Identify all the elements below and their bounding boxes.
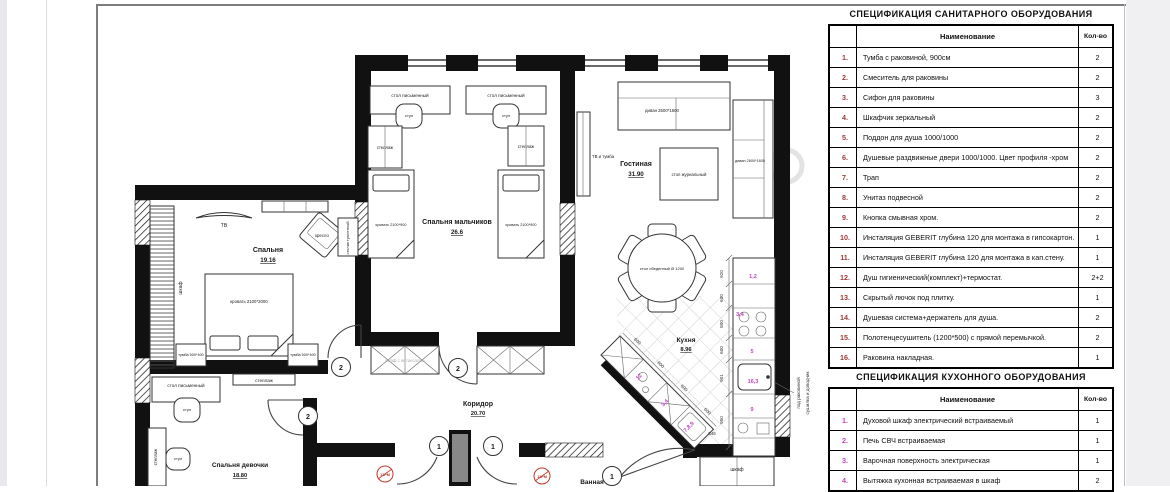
cell-num: 10.: [829, 228, 857, 248]
cell-num: 8.: [829, 188, 857, 208]
cell-name: Инсталяция GEBERIT глубина 120 для монта…: [857, 228, 1079, 248]
cell-qty: 2: [1079, 128, 1114, 148]
table-row: 15.Полотенцесушитель (1200*500) с прямой…: [829, 328, 1113, 348]
room-area-girl: 18.80: [233, 473, 248, 479]
desk-2-label: стол письменный: [487, 92, 525, 98]
dim-901: 901: [719, 374, 724, 382]
table-row: 11.Инсталяция GEBERIT глубина 120 для мо…: [829, 248, 1113, 268]
cell-num: 1.: [829, 411, 857, 431]
sanitary-spec-panel: СПЕЦИФИКАЦИЯ САНИТАРНОГО ОБОРУДОВАНИЯ На…: [828, 9, 1114, 369]
cell-qty: 3: [1079, 88, 1114, 108]
tag-nine: 9: [750, 407, 753, 413]
cell-name: Инсталяция GEBERIT глубина 120 для монта…: [857, 248, 1079, 268]
cell-num: 2.: [829, 431, 857, 451]
cell-num: 4.: [829, 471, 857, 492]
red-tag-right: 12РМ: [534, 468, 550, 484]
table-row: 1.Тумба с раковиной, 900см2: [829, 48, 1113, 68]
cell-name: Душ гигиенический(комплект)+термостат.: [857, 268, 1079, 288]
coffee-table-label: стол журнальный: [672, 172, 707, 177]
header-empty: [829, 25, 857, 48]
door-tag-2b: 2: [449, 359, 468, 378]
nightstand-left-label: тумба 500*400: [178, 353, 204, 357]
room-label-girl: Спальня девочки: [212, 462, 268, 469]
wardrobe-note: шкаф с антресолью: [385, 358, 426, 363]
note-under-sink: под раковиной: [795, 377, 801, 409]
room-label-boys: Спальня мальчиков: [422, 219, 492, 226]
door-tag-1c: 1: [603, 467, 622, 486]
cell-name: Полотенцесушитель (1200*500) с прямой пе…: [857, 328, 1079, 348]
table-header-row: Наименование Кол-во: [829, 388, 1113, 411]
dim-600b: 600: [719, 346, 724, 354]
table-row: 13.Скрытый лючок под плитку.1: [829, 288, 1113, 308]
sofa-top-label: диван 2500*1600: [645, 108, 679, 113]
cell-num: 7.: [829, 168, 857, 188]
cell-name: Сифон для раковины: [857, 88, 1079, 108]
cell-qty: 1: [1079, 451, 1114, 471]
dim-600a: 600: [719, 294, 724, 302]
desk-1-label: стол письменный: [391, 92, 429, 98]
header-qty: Кол-во: [1079, 388, 1114, 411]
room-area-boys: 26.6: [451, 229, 464, 236]
shelf-2-label: стеллаж: [518, 144, 535, 149]
sofa-right-label: диван 2600*1600: [735, 159, 765, 163]
table-row: 3.Варочная поверхность электрическая1: [829, 451, 1113, 471]
cell-name: Духовой шкаф электрический встраиваемый: [857, 411, 1079, 431]
cell-qty: 2: [1079, 68, 1114, 88]
cell-qty: 2: [1079, 168, 1114, 188]
tv-label: ТВ: [221, 223, 228, 229]
table-row: 12.Душ гигиенический(комплект)+термостат…: [829, 268, 1113, 288]
cell-name: Скрытый лючок под плитку.: [857, 288, 1079, 308]
cell-name: Поддон для душа 1000/1000: [857, 128, 1079, 148]
room-label-kitchen: Кухня: [677, 337, 696, 344]
table-row: 10.Инсталяция GEBERIT глубина 120 для мо…: [829, 228, 1113, 248]
shelf-ledge: [262, 201, 328, 212]
header-name: Наименование: [857, 25, 1079, 48]
cell-name: Смеситель для раковины: [857, 68, 1079, 88]
cell-num: 9.: [829, 208, 857, 228]
tv-stand-label: ТВ и тумба: [592, 154, 615, 159]
table-row: 1.Духовой шкаф электрический встраиваемы…: [829, 411, 1113, 431]
cell-num: 12.: [829, 268, 857, 288]
cell-num: 4.: [829, 108, 857, 128]
cell-qty: 2+2: [1079, 268, 1114, 288]
chair-2-label: стул: [502, 113, 511, 118]
dim-920: 920: [719, 270, 724, 278]
cell-num: 2.: [829, 68, 857, 88]
room-area-corridor: 20.70: [471, 411, 486, 417]
room-label-living: Гостиная: [620, 161, 652, 168]
bed-boy-1: кровать 2100*900: [368, 170, 414, 258]
red-tag-left: 12РМ: [377, 466, 393, 482]
cell-num: 6.: [829, 148, 857, 168]
cell-qty: 2: [1079, 148, 1114, 168]
shelf-wall-label: стеллаж: [255, 378, 274, 383]
table-row: 3.Сифон для раковины3: [829, 88, 1113, 108]
cell-num: 11.: [829, 248, 857, 268]
table-row: 16.Раковина накладная.1: [829, 348, 1113, 369]
door-tag-2a: 2: [332, 358, 351, 377]
shelf-girl-label: стеллаж: [153, 449, 158, 466]
cell-qty: 2: [1079, 471, 1114, 492]
bed-boy-2-label: кровать 2100*900: [506, 223, 537, 227]
room-area-bedroom: 19.16: [260, 257, 276, 264]
door-tag-1b: 1: [484, 437, 503, 456]
cell-qty: 2: [1079, 48, 1114, 68]
room-boys: стол письменный стол письменный стул сту…: [368, 86, 615, 258]
room-area-living: 31.90: [628, 171, 644, 178]
cell-qty: 1: [1079, 248, 1114, 268]
cell-qty: 1: [1079, 411, 1114, 431]
svg-text:2: 2: [456, 366, 460, 373]
cell-num: 1.: [829, 48, 857, 68]
desk-girl-label: стол письменный: [167, 382, 205, 388]
dining-table-label: стол обеденный Ø 1200: [640, 266, 685, 271]
cell-name: Вытяжка кухонная встраиваемая в шкаф: [857, 471, 1079, 492]
header-qty: Кол-во: [1079, 25, 1114, 48]
hall-closet: шкаф: [700, 457, 774, 486]
svg-text:12РМ: 12РМ: [380, 473, 390, 477]
kitchen-right-counter: [733, 258, 775, 456]
dim-800: 800: [719, 320, 724, 328]
sanitary-spec-title: СПЕЦИФИКАЦИЯ САНИТАРНОГО ОБОРУДОВАНИЯ: [828, 9, 1114, 19]
sofa-right: диван 2600*1600: [733, 100, 773, 218]
cell-num: 16.: [829, 348, 857, 369]
nightstand-right-label: тумба 500*400: [290, 353, 316, 357]
table-row: 7.Трап2: [829, 168, 1113, 188]
cell-name: Раковина накладная.: [857, 348, 1079, 369]
table-row: 9.Кнопка смывная хром.2: [829, 208, 1113, 228]
sanitary-spec-table: Наименование Кол-во 1.Тумба с раковиной,…: [828, 24, 1114, 369]
kitchen-spec-table: Наименование Кол-во 1.Духовой шкаф элект…: [828, 387, 1114, 492]
chair-1-label: стул: [405, 113, 414, 118]
svg-text:2: 2: [339, 365, 343, 372]
double-bed: кровать 2100*2000: [205, 274, 293, 356]
header-name: Наименование: [857, 388, 1079, 411]
table-row: 14.Душевая система+держатель для душа.2: [829, 308, 1113, 328]
dim-646: 646: [708, 431, 716, 436]
dressing-table-label: столик туалетный: [345, 222, 350, 255]
cell-qty: 2: [1079, 208, 1114, 228]
cell-name: Печь СВЧ встраиваемая: [857, 431, 1079, 451]
table-row: 2.Печь СВЧ встраиваемая1: [829, 431, 1113, 451]
svg-text:12РМ: 12РМ: [537, 475, 547, 479]
tag-five: 5: [750, 349, 753, 355]
entry-shaft: [452, 434, 468, 482]
closet-label: шкаф: [730, 467, 743, 473]
room-label-bath: Ванная: [580, 479, 604, 486]
cell-name: Тумба с раковиной, 900см: [857, 48, 1079, 68]
cell-qty: 2: [1079, 328, 1114, 348]
sink-icon: [738, 364, 771, 390]
tag-hob-hood: 3,4: [736, 312, 745, 318]
corridor: шкаф с антресолью Коридор 20.70: [371, 346, 544, 417]
cell-name: Унитаз подвесной: [857, 188, 1079, 208]
wardrobe-strip: [150, 206, 174, 368]
svg-text:1: 1: [491, 444, 495, 451]
tag-sink: 16,3: [748, 379, 759, 385]
cell-num: 3.: [829, 451, 857, 471]
cell-qty: 2: [1079, 308, 1114, 328]
tag-oven-micro: 1,2: [749, 274, 757, 280]
bed-boy-1-label: кровать 2100*900: [376, 223, 407, 227]
room-label-bedroom: Спальня: [253, 247, 283, 254]
cell-name: Шкафчик зеркальный: [857, 108, 1079, 128]
chair-girl-1-label: стул: [183, 407, 192, 412]
cell-name: Кнопка смывная хром.: [857, 208, 1079, 228]
table-row: 2.Смеситель для раковины2: [829, 68, 1113, 88]
table-row: 6.Душевые раздвижные двери 1000/1000. Цв…: [829, 148, 1113, 168]
kitchen-spec-panel: СПЕЦИФИКАЦИЯ КУХОННОГО ОБОРУДОВАНИЯ Наим…: [828, 372, 1114, 492]
dim-950: 950: [719, 416, 724, 424]
armchair-label: кресло: [315, 233, 329, 238]
svg-text:2: 2: [306, 414, 310, 421]
cell-qty: 1: [1079, 288, 1114, 308]
cell-num: 5.: [829, 128, 857, 148]
cell-name: Душевые раздвижные двери 1000/1000. Цвет…: [857, 148, 1079, 168]
cell-qty: 1: [1079, 348, 1114, 369]
note-closer: сушилка и доводчик: [805, 370, 810, 414]
bed-label: кровать 2100*2000: [230, 299, 268, 304]
tv-shape: [196, 213, 252, 219]
table-row: 8.Унитаз подвесной2: [829, 188, 1113, 208]
bed-boy-2: кровать 2100*900: [498, 170, 544, 258]
table-row: 5.Поддон для душа 1000/10002: [829, 128, 1113, 148]
cell-qty: 2: [1079, 108, 1114, 128]
table-header-row: Наименование Кол-во: [829, 25, 1113, 48]
header-empty: [829, 388, 857, 411]
shelf-1-label: стеллаж: [377, 145, 394, 150]
cell-num: 15.: [829, 328, 857, 348]
cell-num: 3.: [829, 88, 857, 108]
tv-stand: [577, 112, 590, 196]
cell-qty: 1: [1079, 228, 1114, 248]
door-tag-1a: 1: [430, 437, 449, 456]
wardrobe-label: шкаф: [178, 281, 184, 294]
kitchen-spec-title: СПЕЦИФИКАЦИЯ КУХОННОГО ОБОРУДОВАНИЯ: [828, 372, 1114, 382]
cell-name: Трап: [857, 168, 1079, 188]
cell-name: Варочная поверхность электрическая: [857, 451, 1079, 471]
svg-text:1: 1: [437, 444, 441, 451]
table-row: 4.Шкафчик зеркальный2: [829, 108, 1113, 128]
cell-num: 13.: [829, 288, 857, 308]
room-bedroom: шкаф ТВ кровать 2100*2000 тумба 500*400 …: [150, 201, 358, 368]
room-girl: стол письменный стул стеллаж стул стелла…: [148, 374, 295, 486]
cell-qty: 2: [1079, 188, 1114, 208]
cell-name: Душевая система+держатель для душа.: [857, 308, 1079, 328]
chair-girl-2-label: стул: [174, 456, 183, 461]
door-tag-2c: 2: [299, 407, 318, 426]
sofa-top: диван 2500*1600: [618, 82, 730, 130]
svg-text:1: 1: [610, 474, 614, 481]
room-label-corridor: Коридор: [463, 401, 493, 408]
table-row: 4.Вытяжка кухонная встраиваемая в шкаф2: [829, 471, 1113, 492]
cell-qty: 1: [1079, 431, 1114, 451]
dining-table: стол обеденный Ø 1200: [617, 224, 707, 312]
cell-num: 14.: [829, 308, 857, 328]
room-area-kitchen: 8.96: [680, 347, 692, 353]
